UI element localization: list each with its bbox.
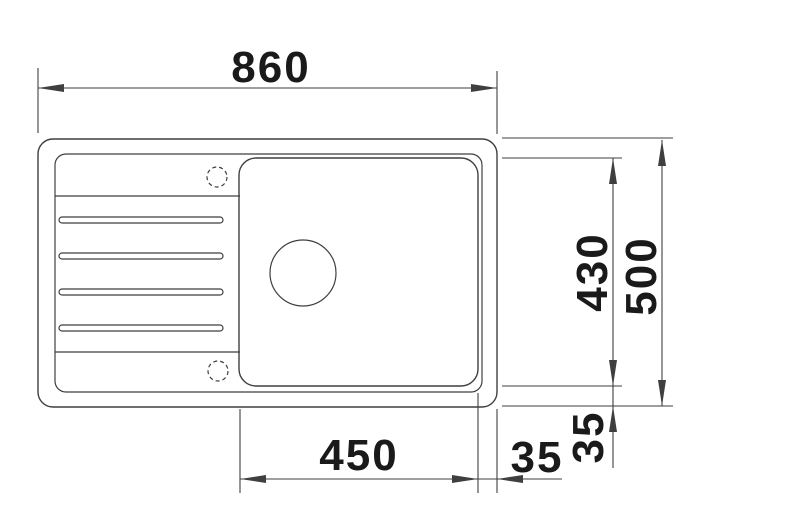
dimension-label-overall-depth: 500: [617, 236, 666, 315]
drainboard-groove: [59, 217, 223, 223]
technical-drawing-canvas: 860 500 430 35: [0, 0, 800, 507]
dimension-bowl-offset-bottom: 35: [564, 406, 617, 463]
dimension-label-bowl-offset-bottom: 35: [564, 411, 613, 464]
dimension-label-bowl-depth: 430: [568, 232, 617, 311]
arrowhead-right-icon: [452, 475, 478, 483]
sink-rim-inner-outline: [55, 154, 482, 392]
dimension-label-bowl-width: 450: [319, 431, 398, 480]
arrowhead-up-icon: [609, 158, 617, 184]
dimension-label-bowl-offset-right: 35: [511, 433, 564, 482]
arrowhead-right-icon: [471, 84, 497, 92]
drainboard-groove: [59, 289, 223, 295]
arrowhead-up-icon: [658, 140, 666, 166]
tap-hole-bottom: [208, 361, 228, 381]
drainboard-groove: [59, 253, 223, 259]
arrowhead-down-icon: [609, 360, 617, 386]
sink-outer-outline: [38, 139, 497, 407]
arrowhead-left-icon: [240, 475, 266, 483]
arrowhead-down-icon: [658, 380, 666, 406]
dimension-bowl-offset-right: 35: [497, 409, 563, 493]
drain-circle: [270, 240, 336, 306]
dimension-overall-width: 860: [38, 43, 497, 134]
sink-dimension-drawing: 860 500 430 35: [0, 0, 800, 507]
drainboard-grooves: [59, 217, 223, 331]
sink-body: [38, 139, 497, 407]
tap-hole-top: [207, 167, 227, 187]
dimension-label-overall-width: 860: [231, 43, 310, 92]
drainboard-groove: [59, 325, 223, 331]
arrowhead-left-icon: [38, 84, 64, 92]
bowl-outline: [239, 158, 478, 386]
